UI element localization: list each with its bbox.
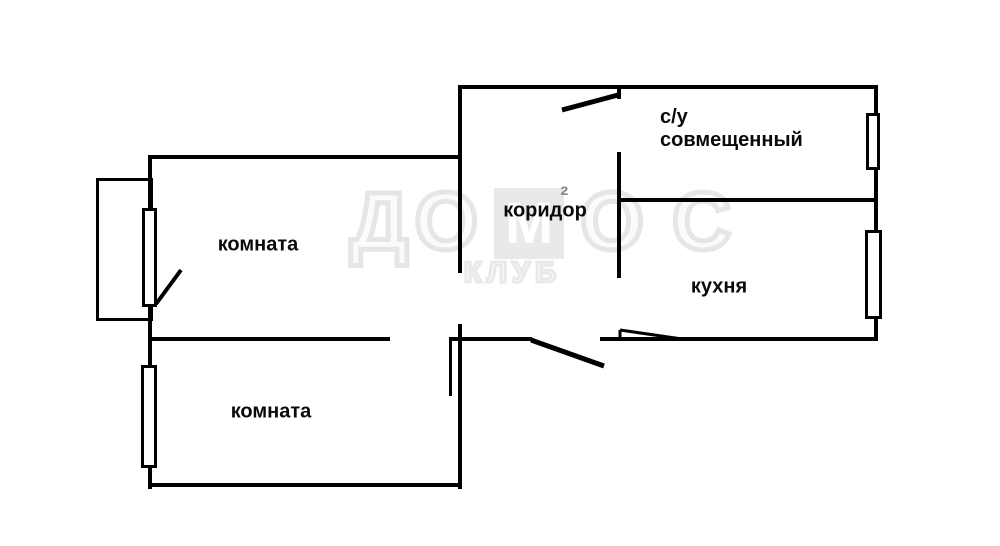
wall-corridor-left-upper [458,85,462,159]
watermark-letter: Д [350,186,408,258]
room-label-top: комната [218,234,299,257]
bathroom-label-line2: совмещенный [660,129,803,152]
balcony-door-swing [156,270,181,304]
wall-room-top-top [148,155,462,159]
wall-top-outer [458,85,878,89]
window-bathroom [866,113,880,170]
window-room-bottom [141,365,157,468]
watermark-letter: О [580,186,644,258]
wall-room-top-right-upper [458,155,462,273]
kitchen-label: кухня [691,276,747,299]
wall-rooms-divider [148,337,390,341]
entrance-door-swing [531,340,604,366]
bathroom-door-swing [562,95,618,110]
wall-room-bottom-bottom [148,483,462,487]
watermark-club: КЛУБ [464,257,561,290]
room-label-bottom: комната [231,401,312,424]
watermark-domos: Д О М ² О С [350,186,731,259]
wall-kitchen-bottom [600,337,878,341]
floorplan-canvas: Д О М ² О С КЛУБ комната комната коридор… [0,0,1000,546]
window-kitchen [865,230,882,319]
corridor-label: коридор [503,200,587,223]
bathroom-label-line1: с/у [660,106,803,129]
wall-corridor-bottom [449,337,532,341]
window-balcony-door [142,208,157,307]
wall-corridor-kitchen [617,152,621,278]
door-leaf-room-bottom [449,340,452,396]
wall-rooms-right-lower [458,324,462,489]
bathroom-label: с/у совмещенный [660,106,803,152]
watermark-letter: С [672,186,731,258]
wall-bathroom-door-jamb [617,85,621,99]
watermark-letter: О [414,186,478,258]
wall-bathroom-kitchen-divider [617,198,878,202]
